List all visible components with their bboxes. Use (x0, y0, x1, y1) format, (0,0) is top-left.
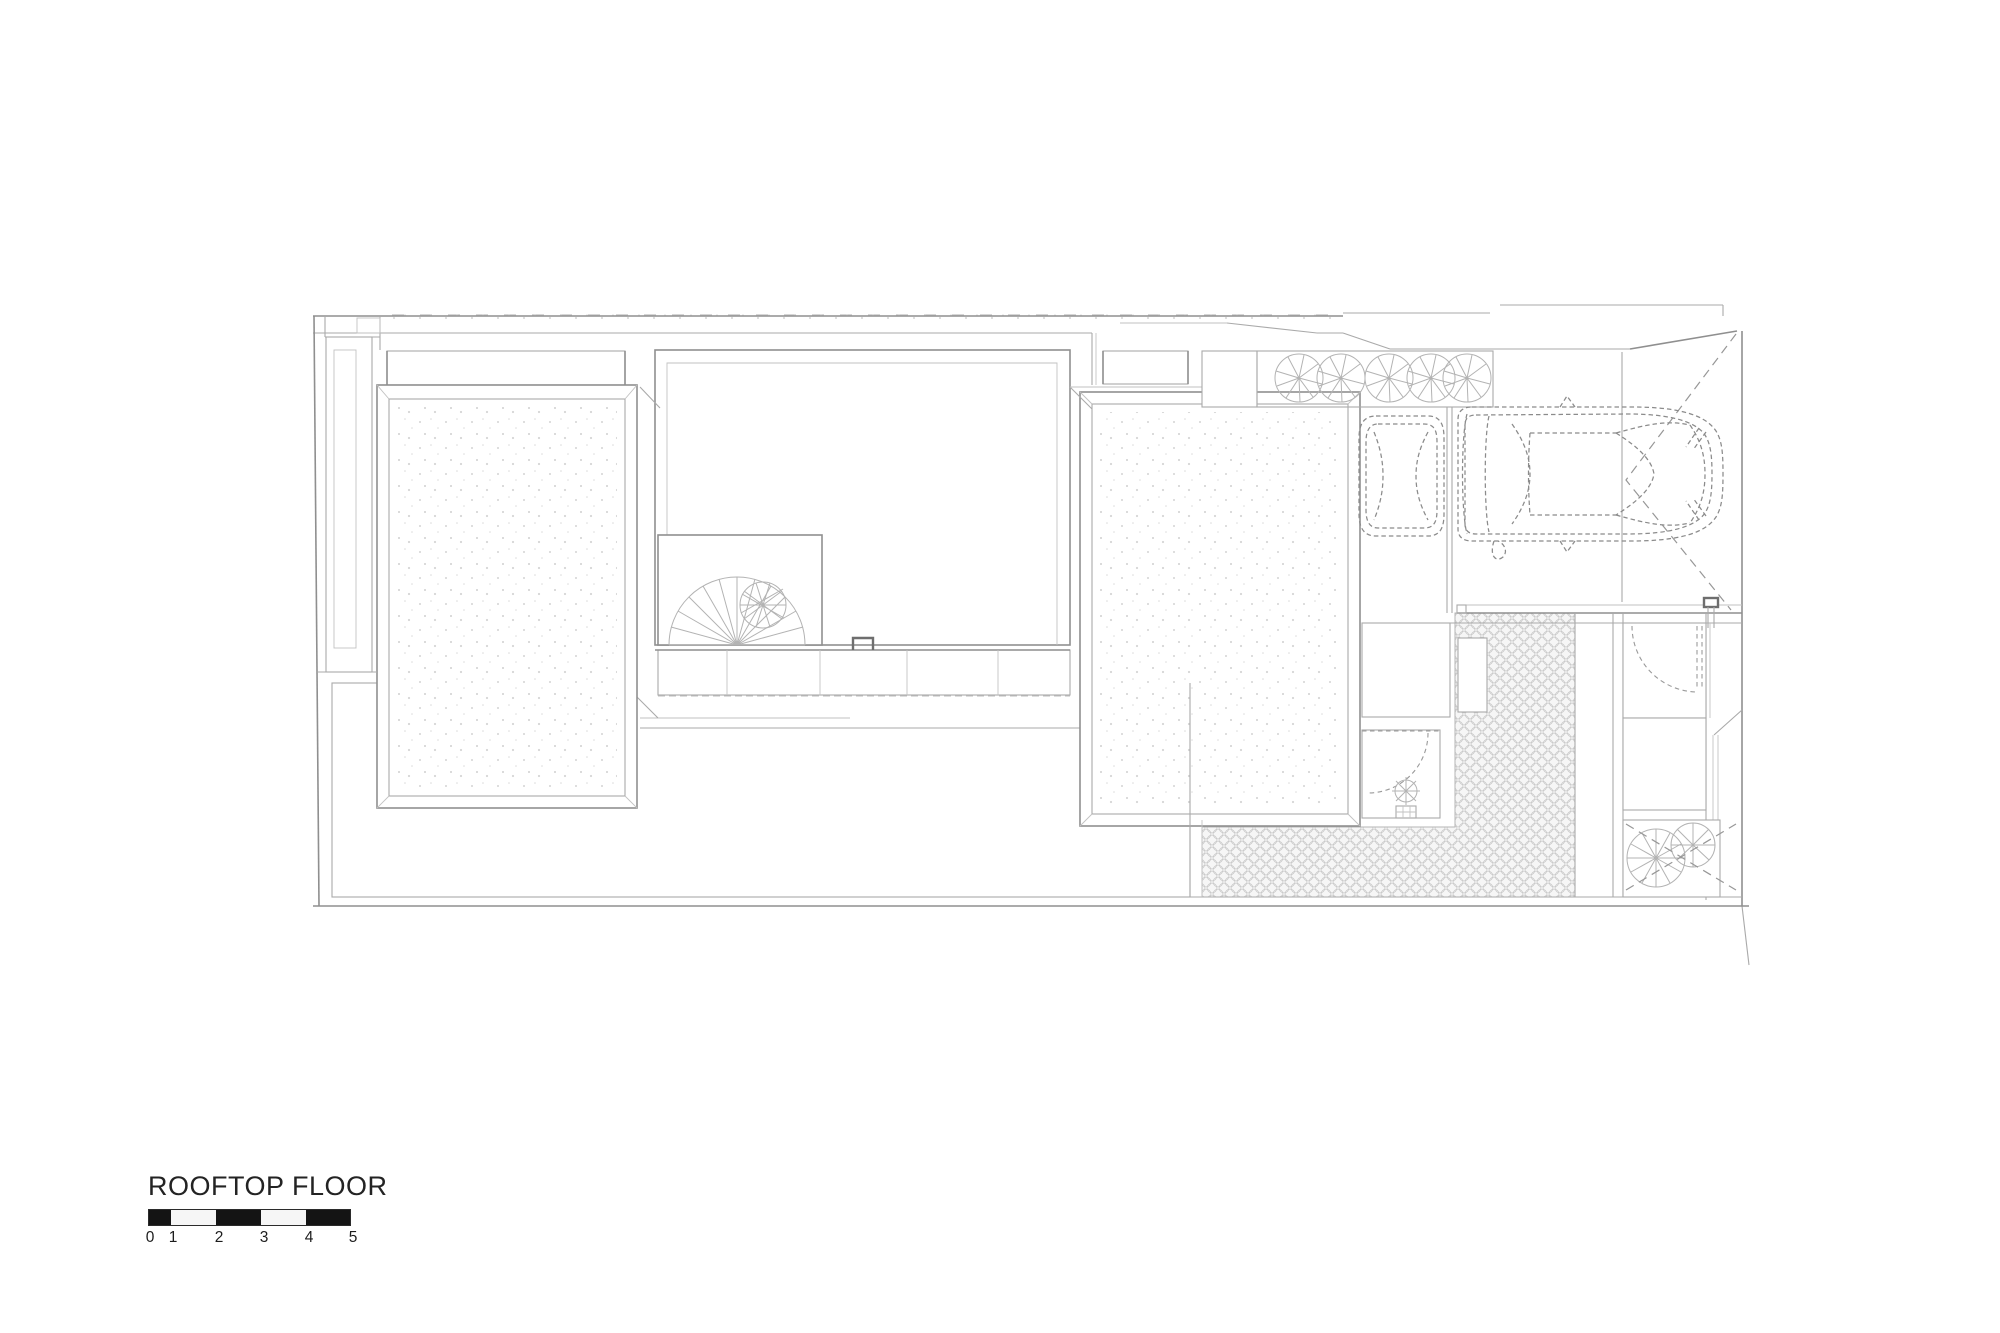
scale-label: 3 (260, 1229, 269, 1247)
rooftop-unit-box (1458, 638, 1487, 712)
scale-bar-segment (306, 1210, 350, 1225)
scale-label: 2 (215, 1229, 224, 1247)
drawing-title: ROOFTOP FLOOR (148, 1172, 448, 1202)
fan-room (1623, 820, 1736, 897)
plus-hatch-room (1362, 623, 1450, 717)
gravel-strip-right (1103, 351, 1188, 384)
tree-canopy-icon (1407, 354, 1455, 402)
planter-room (1362, 730, 1440, 818)
car-top-view-icon (1458, 396, 1723, 559)
compact-car-top-view-icon (1359, 416, 1444, 536)
stair-room (658, 535, 822, 645)
scale-bar (148, 1209, 351, 1226)
tree-canopy-icon (1365, 354, 1413, 402)
scale-bar-labels: 0 1 2 3 4 5 (148, 1229, 448, 1249)
title-block: ROOFTOP FLOOR 0 1 2 3 4 5 (148, 1172, 448, 1249)
scale-label: 5 (349, 1229, 358, 1247)
carport (1359, 334, 1742, 628)
void-cross-marker (1626, 334, 1736, 610)
scale-bar-segment (171, 1210, 216, 1225)
scale-label: 1 (169, 1229, 178, 1247)
left-roof-deck (377, 385, 637, 808)
scale-label: 4 (305, 1229, 314, 1247)
gravel-strip-left (387, 351, 625, 385)
scale-label: 0 (146, 1229, 155, 1247)
scale-bar-segment (261, 1210, 306, 1225)
right-roof-deck (1070, 387, 1360, 826)
room-mid-right (1623, 718, 1706, 810)
floor-plan-drawing (0, 0, 2000, 1333)
room-upper-right (1623, 623, 1706, 718)
rooftop-floor-plan-sheet: ROOFTOP FLOOR 0 1 2 3 4 5 (0, 0, 2000, 1333)
scale-bar-segment (216, 1210, 261, 1225)
left-service-strip (318, 316, 380, 672)
scale-bar-segment (149, 1210, 171, 1225)
tree-canopy-icon (1443, 354, 1491, 402)
